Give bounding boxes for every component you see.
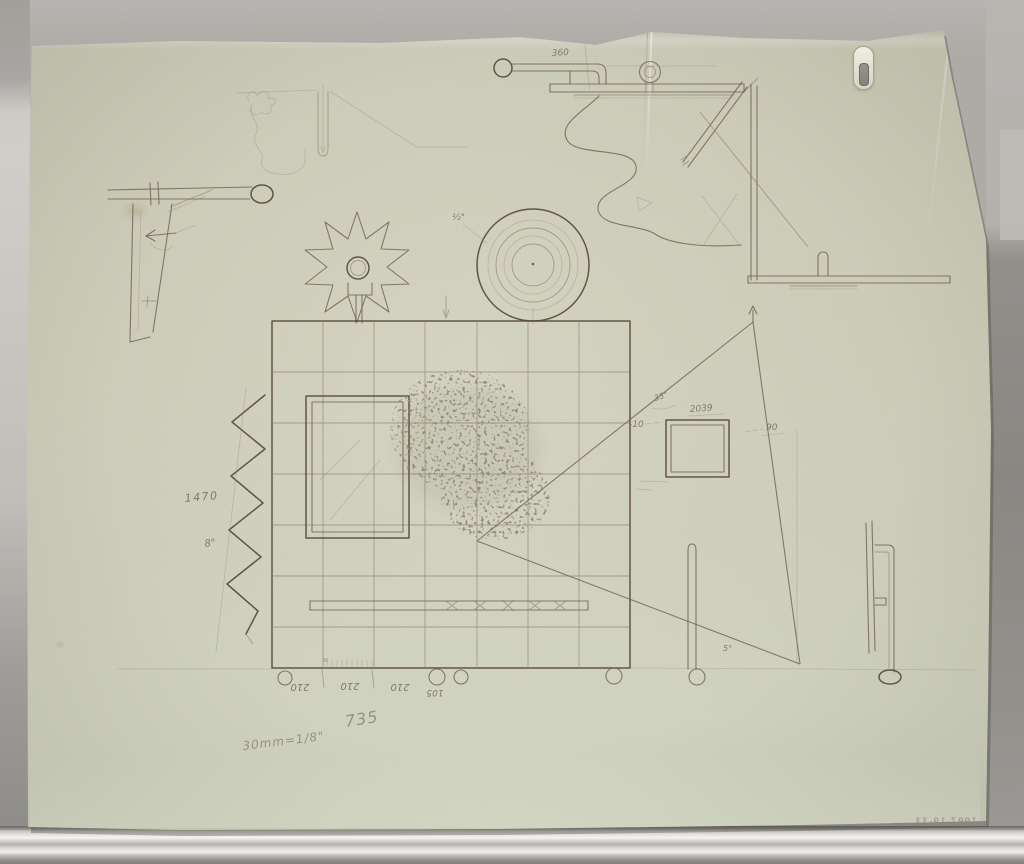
x-marks [446,600,566,611]
pointer-triangle [637,197,652,211]
star-outline [305,212,409,322]
photograph-of-pencil-drawing: 210 210 210 105 360 ½" [0,0,1024,864]
small-framed-square [636,405,784,490]
corner-bracket-plan [637,78,950,289]
arm-ball-end [494,59,512,77]
dimension-marks: 210 210 210 105 [290,658,443,697]
down-arrow-mark [443,296,449,318]
pencil-drawing: 210 210 210 105 360 ½" [0,0,1024,864]
angle-8-label: 8° [204,537,217,549]
side-elevation [866,521,901,684]
dim-2039-label: 2039 [690,403,714,415]
angle-35-label: 35° [653,390,669,403]
zigzag-edge [216,388,265,652]
diagonal-brace [700,112,808,247]
dim-1470-label: 1470 [184,489,219,505]
shelf-bar [550,84,744,98]
dim-210-a: 210 [290,681,309,692]
dim-90-label: 90 [766,423,778,433]
dim-210-b: 210 [340,680,359,691]
arm-assembly-top [494,59,744,246]
ruler-ticks [323,658,372,666]
dim-210-c: 210 [390,681,409,692]
base-bar [748,276,950,289]
scale-note-label: 30mm=1/8" [242,729,326,753]
sketch-wall-detail [237,85,468,174]
star-ornament [305,212,409,323]
angle-5-label: 5° [723,644,732,653]
dim-360-label: 360 [552,48,570,59]
disc-ornament [463,209,589,324]
star-mount [348,283,372,295]
mat-edge-left [0,0,30,864]
annotation-labels: 360 ½" 1470 8° 35° 2039 -10 90 5° 735 30… [184,48,977,827]
graphite-smudge [390,370,550,540]
mat-edge-right-highlight [1000,130,1024,240]
paper-sheet: 210 210 210 105 360 ½" [0,0,1024,864]
side-foot [879,670,901,684]
dim-105: 105 [426,687,443,697]
dim-735-label: 735 [344,707,380,731]
base-tab [818,252,828,276]
disc-note-label: ½" [452,213,465,223]
support-post [688,544,696,669]
bracket-ball-end [251,185,273,203]
arrow-left [146,225,196,241]
shelf-bar-with-x [310,600,588,611]
dim-minus10-label: -10 [629,420,644,430]
ground-line-right [630,668,975,670]
bracket-side-sketch [108,182,273,342]
arm-ring [640,62,661,83]
